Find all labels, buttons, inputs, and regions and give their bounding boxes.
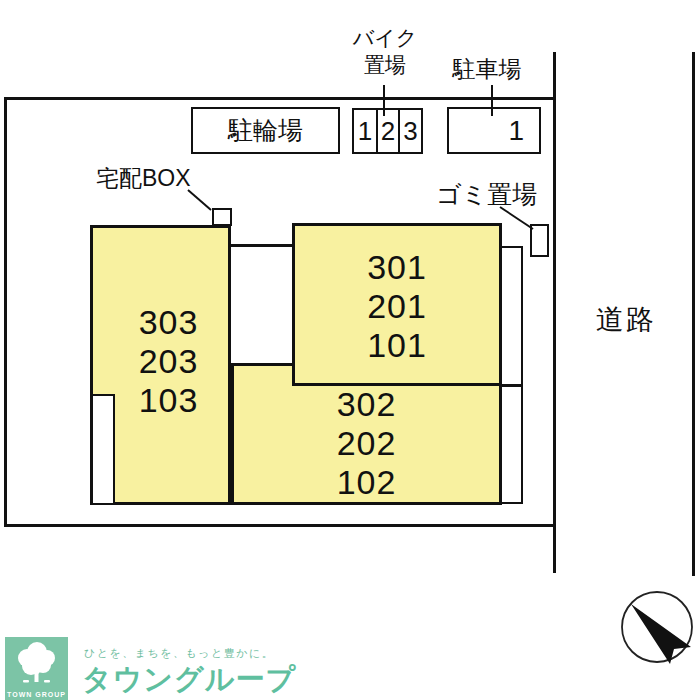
unit-number: 303 [109, 303, 228, 342]
bike-stall-1: 1 [352, 108, 378, 154]
bike-parking-label: バイク 置場 [345, 24, 425, 78]
town-group-logo: TOWN GROUP [5, 637, 68, 700]
logo-tagline: ひとを、まちを、もっと豊かに。 [84, 646, 274, 661]
unit-numbers-bottom: 302 202 102 [234, 385, 499, 502]
bike-stall-3: 3 [398, 108, 423, 154]
east-walkway-strip [500, 246, 523, 504]
bicycle-parking-box: 駐輪場 [191, 107, 340, 154]
corridor-line [231, 244, 295, 247]
delivery-box-label: 宅配BOX [96, 163, 191, 194]
car-parking-label: 駐車場 [450, 54, 524, 85]
bike-parking-label-line2: 置場 [345, 51, 425, 78]
bike-stall-2: 2 [376, 108, 401, 154]
bicycle-parking-box-label: 駐輪場 [228, 114, 303, 147]
unit-number: 102 [234, 463, 499, 502]
bike-parking-label-line1: バイク [345, 24, 425, 51]
building-notch [91, 394, 115, 505]
unit-numbers-right: 301 201 101 [295, 248, 499, 365]
site-plan-image: バイク 置場 駐車場 駐輪場 1 2 3 1 宅配BOX ゴミ置場 303 20… [0, 0, 700, 700]
delivery-box-leader-line [188, 190, 211, 210]
unit-number: 201 [295, 287, 499, 326]
bike-stall-number: 2 [381, 116, 395, 147]
building-block-right: 301 201 101 [292, 223, 502, 386]
compass-north-arrow-icon [622, 592, 692, 664]
unit-number: 301 [295, 248, 499, 287]
brand-name: タウングループ [82, 660, 296, 700]
road-edge-far [692, 52, 695, 576]
car-parking-space-box: 1 [447, 107, 541, 154]
bike-stall-number: 3 [403, 116, 417, 147]
road-label: 道路 [596, 301, 656, 339]
unit-number: 302 [234, 385, 499, 424]
bike-stall-number: 1 [358, 116, 372, 147]
unit-number: 203 [109, 342, 228, 381]
unit-number: 202 [234, 424, 499, 463]
plot-border-bottom [4, 524, 556, 527]
garbage-area-label: ゴミ置場 [436, 178, 537, 211]
bike-stalls: 1 2 3 [352, 108, 423, 154]
unit-number: 103 [109, 381, 228, 420]
road-edge-near [553, 52, 556, 573]
east-walkway-divider [500, 384, 523, 387]
garbage-area-box [530, 224, 549, 257]
plot-border-left [4, 97, 7, 527]
logo-text: TOWN GROUP [5, 691, 68, 698]
car-space-number: 1 [508, 115, 524, 147]
plot-border-top [4, 97, 556, 100]
unit-number: 101 [295, 326, 499, 365]
delivery-box [212, 208, 232, 226]
